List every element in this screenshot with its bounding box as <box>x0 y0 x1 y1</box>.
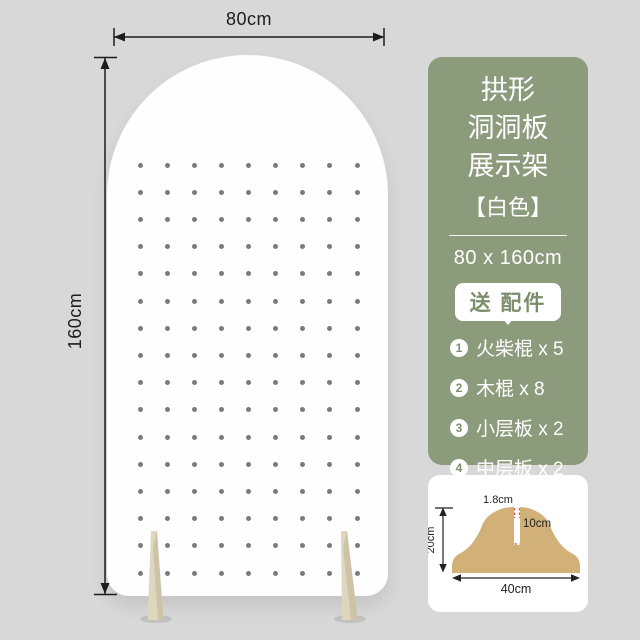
peg-hole <box>355 271 360 276</box>
peg-hole <box>192 516 197 521</box>
peg-hole <box>327 299 332 304</box>
board-height-label: 160cm <box>65 289 87 353</box>
slot-markers <box>515 508 520 544</box>
peg-hole <box>219 163 224 168</box>
peg-hole <box>273 244 278 249</box>
peg-hole <box>138 163 143 168</box>
peg-hole <box>219 516 224 521</box>
peg-hole <box>246 217 251 222</box>
peg-hole <box>192 462 197 467</box>
product-size: 80 x 160cm <box>428 247 588 270</box>
peg-hole <box>300 489 305 494</box>
base-diagram: 1.8cm 10cm 20cm 40cm <box>428 475 588 612</box>
peg-hole <box>246 353 251 358</box>
peg-hole <box>300 326 305 331</box>
peg-hole <box>327 516 332 521</box>
peg-hole <box>219 217 224 222</box>
peg-hole <box>165 244 170 249</box>
peg-hole <box>300 271 305 276</box>
accessory-item: 2木棍 x 8 <box>450 374 588 401</box>
peg-hole <box>355 435 360 440</box>
slot-width-label: 1.8cm <box>483 494 513 506</box>
peg-hole <box>138 353 143 358</box>
peg-hole <box>219 353 224 358</box>
peg-hole <box>273 299 278 304</box>
peg-hole <box>355 326 360 331</box>
peg-hole <box>300 407 305 412</box>
peg-hole <box>165 435 170 440</box>
peg-hole <box>219 244 224 249</box>
peg-hole <box>300 353 305 358</box>
peg-hole <box>355 353 360 358</box>
peg-hole <box>138 380 143 385</box>
peg-hole <box>273 516 278 521</box>
peg-hole <box>138 244 143 249</box>
peg-hole <box>138 407 143 412</box>
peg-hole <box>192 353 197 358</box>
peg-hole <box>219 299 224 304</box>
peg-hole <box>165 326 170 331</box>
peg-hole <box>219 489 224 494</box>
peg-hole <box>300 516 305 521</box>
pegboard <box>107 55 388 596</box>
peg-hole <box>355 489 360 494</box>
base-width-label: 40cm <box>501 582 532 596</box>
peg-hole <box>219 271 224 276</box>
accessory-item: 1火柴棍 x 5 <box>450 334 588 361</box>
peg-hole <box>327 353 332 358</box>
base-height-arrow <box>435 508 453 569</box>
peg-hole <box>355 462 360 467</box>
peg-hole <box>138 271 143 276</box>
peg-hole <box>219 407 224 412</box>
peg-hole <box>138 299 143 304</box>
peg-hole <box>138 326 143 331</box>
wooden-feet <box>140 528 370 624</box>
peg-hole <box>273 380 278 385</box>
arrowhead-down <box>439 564 446 573</box>
peg-hole <box>138 489 143 494</box>
peg-hole <box>165 353 170 358</box>
peg-hole <box>246 244 251 249</box>
peg-hole <box>246 271 251 276</box>
title-line-2: 洞洞板 <box>428 109 588 147</box>
arrowhead-up <box>101 58 110 69</box>
base-height-label: 20cm <box>428 527 437 554</box>
peg-hole <box>165 271 170 276</box>
peg-hole <box>327 244 332 249</box>
peg-hole <box>273 435 278 440</box>
peg-hole <box>246 380 251 385</box>
peg-hole <box>192 380 197 385</box>
peg-hole <box>300 435 305 440</box>
peg-hole <box>219 190 224 195</box>
peg-hole <box>355 299 360 304</box>
peg-hole <box>355 516 360 521</box>
peg-hole <box>192 299 197 304</box>
peg-hole <box>192 244 197 249</box>
accessory-label: 火柴棍 x 5 <box>476 334 564 361</box>
peg-hole <box>138 435 143 440</box>
product-title: 拱形 洞洞板 展示架 <box>428 71 588 185</box>
arrowhead-left <box>114 33 125 42</box>
peg-hole <box>165 163 170 168</box>
peg-hole <box>355 190 360 195</box>
arrowhead-left <box>452 574 461 581</box>
peg-hole <box>327 217 332 222</box>
peg-hole <box>138 190 143 195</box>
peg-hole <box>192 271 197 276</box>
peg-hole <box>165 407 170 412</box>
peg-hole <box>192 163 197 168</box>
base-diagram-card: 1.8cm 10cm 20cm 40cm <box>428 475 588 612</box>
product-info-card: 拱形 洞洞板 展示架 【白色】 80 x 160cm 送 配件 1火柴棍 x 5… <box>428 57 588 465</box>
peg-hole <box>165 380 170 385</box>
peg-hole <box>246 516 251 521</box>
product-image: 80cm 160cm 拱形 洞洞板 展示架 【白色】 80 x 160cm 送 … <box>0 0 640 640</box>
peg-hole <box>246 163 251 168</box>
title-line-1: 拱形 <box>428 71 588 109</box>
peg-hole <box>327 380 332 385</box>
peg-hole <box>300 462 305 467</box>
width-arrow <box>114 28 384 46</box>
accessory-label: 小层板 x 2 <box>476 414 564 441</box>
arrowhead-up <box>439 508 446 517</box>
peg-hole <box>273 271 278 276</box>
arrowhead-right <box>571 574 580 581</box>
peg-hole <box>273 407 278 412</box>
peg-hole <box>327 462 332 467</box>
gift-badge-pointer <box>502 318 514 325</box>
peg-hole <box>246 407 251 412</box>
arrowhead-down <box>101 583 110 594</box>
accessory-list: 1火柴棍 x 52木棍 x 83小层板 x 24中层板 x 2 <box>428 334 588 481</box>
peg-hole <box>273 353 278 358</box>
peg-hole <box>246 326 251 331</box>
accessory-number-badge: 1 <box>450 339 468 357</box>
peg-hole <box>273 217 278 222</box>
accessory-label: 木棍 x 8 <box>476 374 545 401</box>
peg-hole <box>355 244 360 249</box>
peg-hole <box>192 326 197 331</box>
peg-hole <box>327 163 332 168</box>
peg-hole <box>192 489 197 494</box>
peg-hole <box>327 489 332 494</box>
accessory-item: 3小层板 x 2 <box>450 414 588 441</box>
peg-hole <box>273 489 278 494</box>
peg-hole <box>165 217 170 222</box>
peg-hole <box>327 326 332 331</box>
peg-hole <box>355 163 360 168</box>
peg-hole <box>219 380 224 385</box>
peg-hole <box>246 489 251 494</box>
slot-depth-label: 10cm <box>523 518 551 530</box>
peg-hole <box>246 190 251 195</box>
base-wood-shape <box>452 507 580 573</box>
peg-hole <box>192 435 197 440</box>
peg-hole <box>273 190 278 195</box>
divider-line <box>449 235 567 236</box>
accessory-number-badge: 2 <box>450 379 468 397</box>
peg-hole <box>355 380 360 385</box>
peg-hole <box>327 435 332 440</box>
gift-badge: 送 配件 <box>455 283 562 321</box>
peg-hole <box>192 190 197 195</box>
peg-hole <box>138 217 143 222</box>
peg-hole <box>165 299 170 304</box>
peg-hole <box>273 326 278 331</box>
gift-callout: 送 配件 <box>428 283 588 319</box>
peg-hole <box>327 407 332 412</box>
peg-hole <box>300 217 305 222</box>
peg-hole <box>327 190 332 195</box>
board-width-label: 80cm <box>113 9 385 30</box>
peg-hole <box>300 380 305 385</box>
peg-hole <box>219 462 224 467</box>
peg-hole <box>165 489 170 494</box>
peg-hole <box>246 299 251 304</box>
peg-hole <box>219 435 224 440</box>
peg-hole <box>246 462 251 467</box>
peg-hole <box>138 516 143 521</box>
peg-hole <box>219 326 224 331</box>
peg-hole <box>300 244 305 249</box>
peg-hole <box>300 190 305 195</box>
accessory-number-badge: 3 <box>450 419 468 437</box>
peg-hole <box>300 163 305 168</box>
peg-hole <box>355 217 360 222</box>
peg-hole <box>138 462 143 467</box>
peg-hole <box>300 299 305 304</box>
peg-hole <box>246 435 251 440</box>
arrowhead-right <box>373 33 384 42</box>
title-line-3: 展示架 <box>428 147 588 185</box>
peg-hole <box>165 516 170 521</box>
peg-hole <box>192 407 197 412</box>
color-variant-tag: 【白色】 <box>428 190 588 222</box>
peg-hole <box>273 163 278 168</box>
peg-hole <box>355 407 360 412</box>
accessory-number-badge: 4 <box>450 459 468 477</box>
peg-hole <box>327 271 332 276</box>
peg-hole <box>273 462 278 467</box>
peg-hole <box>192 217 197 222</box>
peg-hole <box>165 190 170 195</box>
peg-hole <box>165 462 170 467</box>
